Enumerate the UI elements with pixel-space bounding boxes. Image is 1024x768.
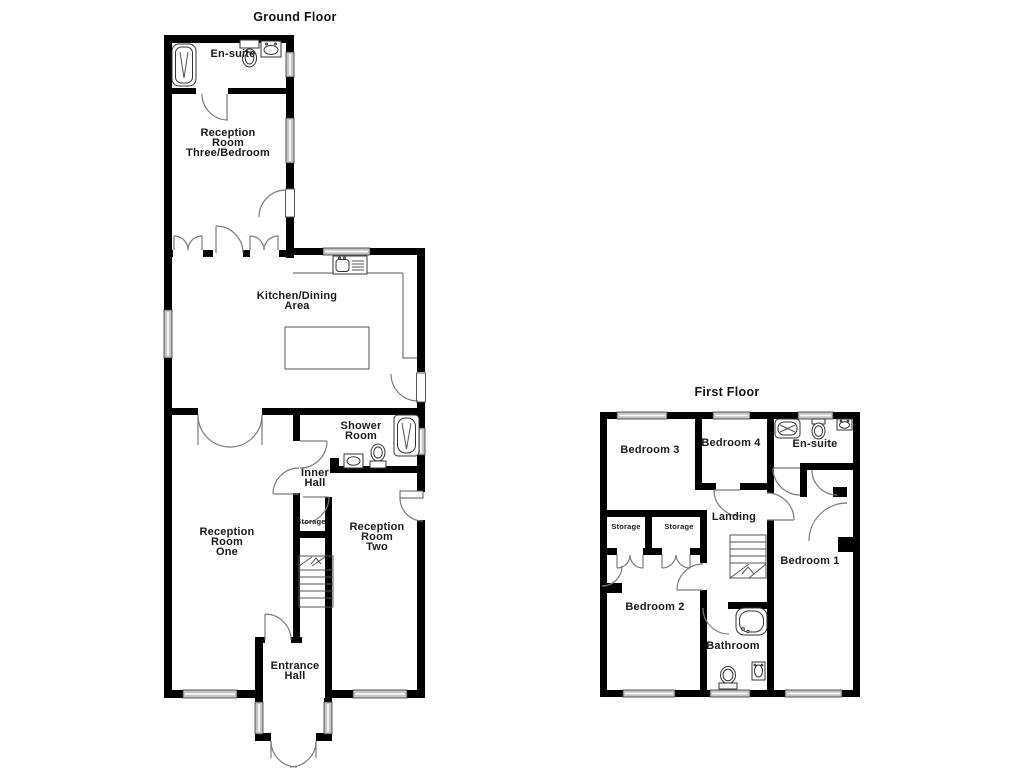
ground-floor-title: Ground Floor — [253, 10, 336, 24]
shower — [775, 419, 800, 438]
room-label-storage-gf: Storage — [296, 518, 325, 526]
floorplan-canvas — [0, 0, 1024, 768]
window — [623, 690, 675, 697]
window — [286, 52, 294, 77]
room-label-ensuite-ff: En-suite — [793, 439, 838, 449]
sink — [837, 419, 852, 430]
window — [353, 690, 407, 698]
window — [286, 118, 294, 163]
window — [798, 412, 833, 419]
window — [183, 690, 237, 698]
window — [713, 412, 750, 419]
staircase — [730, 535, 766, 578]
window — [324, 702, 332, 734]
bath — [172, 44, 196, 86]
sink — [261, 41, 281, 57]
toilet — [719, 667, 737, 690]
window — [164, 310, 172, 358]
sink — [344, 454, 363, 468]
room-label-storage-left: Storage — [611, 523, 640, 531]
toilet — [812, 419, 825, 439]
window — [323, 248, 370, 255]
window — [255, 702, 263, 734]
room-label-ensuite-gf: En-suite — [211, 49, 256, 59]
room-label-kitchen: Kitchen/Dining Area — [257, 291, 337, 311]
window — [617, 412, 667, 419]
window — [785, 690, 842, 697]
first-floor-title: First Floor — [694, 385, 759, 399]
room-label-landing: Landing — [712, 512, 756, 522]
room-label-bedroom-1: Bedroom 1 — [780, 556, 839, 566]
floorplan-page: { "ground_floor": { "title": "Ground Flo… — [0, 0, 1024, 768]
sink — [752, 662, 765, 680]
room-label-reception-two: Reception Room Two — [350, 522, 405, 552]
room-label-bedroom-3: Bedroom 3 — [620, 445, 679, 455]
room-label-bedroom-4: Bedroom 4 — [701, 438, 760, 448]
toilet — [370, 444, 386, 468]
room-label-bedroom-2: Bedroom 2 — [625, 602, 684, 612]
bath — [736, 608, 767, 635]
room-label-reception-three: Reception Room Three/Bedroom — [186, 128, 270, 158]
room-label-storage-right: Storage — [664, 523, 693, 531]
shower — [394, 415, 419, 456]
room-label-entrance-hall: Entrance Hall — [271, 661, 320, 681]
kitchen-counter — [285, 256, 417, 369]
room-label-bathroom: Bathroom — [706, 641, 760, 651]
room-label-inner-hall: Inner Hall — [301, 468, 329, 488]
room-label-shower-room: Shower Room — [341, 421, 382, 441]
window — [710, 690, 750, 697]
room-label-reception-one: Reception Room One — [200, 527, 255, 557]
